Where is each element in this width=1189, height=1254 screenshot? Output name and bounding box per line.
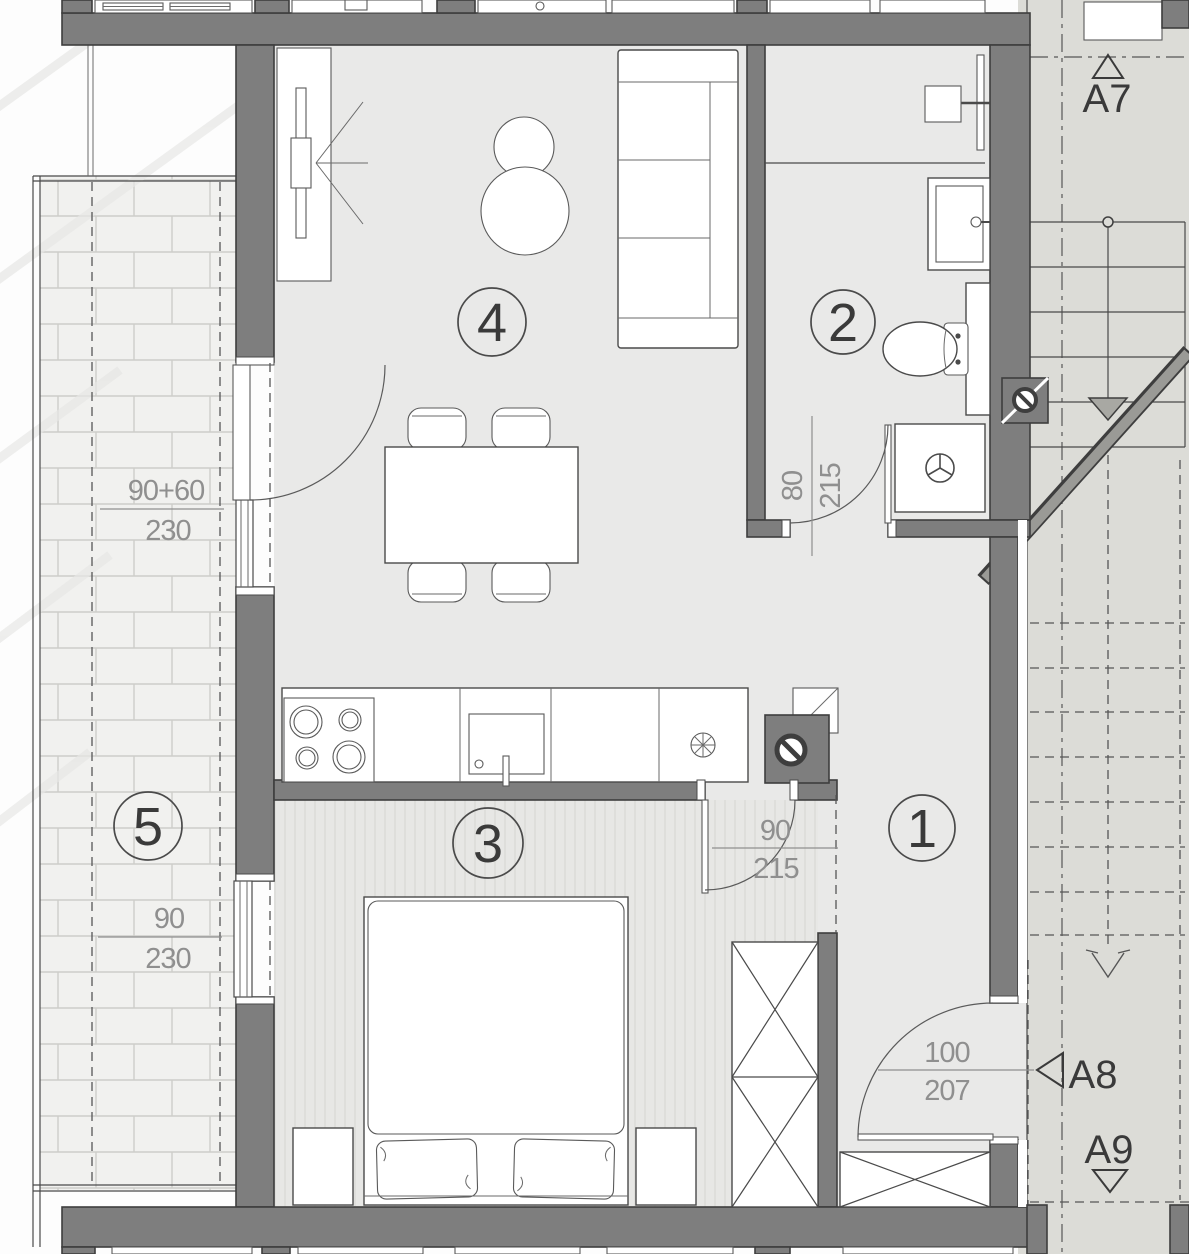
svg-text:4: 4 [477,293,507,353]
neighbor-fixture [1084,2,1162,40]
bed-icon [364,897,628,1205]
floor-plan-drawing: A7 A8 A9 [0,0,1189,1254]
left-wall-upper [236,45,274,362]
balcony-fixed-window [236,500,253,587]
top-exterior-wall [62,13,1030,45]
kitchen-bedroom-wall [274,780,705,800]
svg-text:215: 215 [753,853,798,885]
nightstand-left [293,1128,353,1205]
stair-label-a9: A9 [1085,1128,1134,1172]
right-exterior-wall-upper [990,45,1030,520]
stove-icon [284,698,374,782]
extractor-fan-icon [691,733,715,757]
bottom-exterior-wall [62,1207,1030,1247]
balcony-floor [40,176,236,1190]
entry-door-post [990,1140,1018,1207]
svg-text:80: 80 [777,471,809,501]
vent-shaft-icon [777,736,805,764]
wall-stub [1162,0,1189,28]
svg-text:1: 1 [907,799,937,859]
nightstand-right [636,1128,696,1205]
left-wall-lower [236,997,274,1207]
svg-text:90+60: 90+60 [128,475,204,507]
bath-bottom-wall [888,520,1030,537]
wall-gap [1018,520,1027,1003]
svg-text:207: 207 [924,1075,969,1107]
bedroom-hall-wall [818,933,837,1207]
hall-right-wall [990,537,1018,1003]
svg-text:215: 215 [815,463,847,508]
bedroom-window [234,874,274,1004]
left-wall-middle [236,587,274,881]
living-bath-partition [747,45,765,520]
wall-gap [1018,1140,1027,1207]
floor-plan-page: A7 A8 A9 [0,0,1189,1254]
washing-machine-icon [895,424,985,512]
svg-text:90: 90 [154,903,184,935]
svg-text:230: 230 [145,943,190,975]
svg-text:90: 90 [760,815,790,847]
pillow [513,1139,614,1200]
washbasin-icon [928,178,990,270]
svg-text:5: 5 [133,797,163,857]
stair-label-a8: A8 [1069,1053,1118,1097]
wardrobe-icon [732,942,818,1207]
kitchen [282,688,748,786]
pillow [376,1139,477,1200]
svg-text:100: 100 [924,1037,969,1069]
neighbor-unit-top [62,0,985,13]
stair-label-a7: A7 [1083,77,1132,121]
svg-text:2: 2 [828,293,858,353]
svg-text:230: 230 [145,515,190,547]
sofa-icon [618,50,738,348]
svg-text:3: 3 [473,814,503,874]
shoe-cabinet [840,1152,990,1207]
